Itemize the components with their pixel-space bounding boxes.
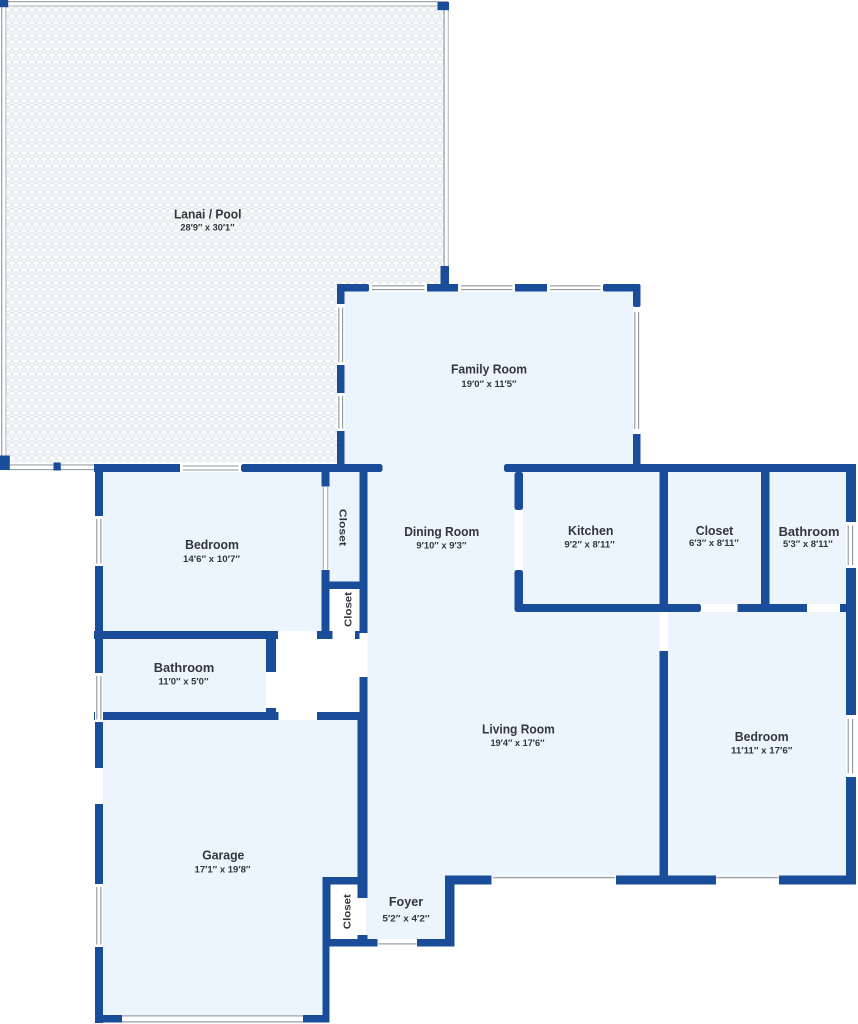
svg-text:17′1″ x 19′8″: 17′1″ x 19′8″ xyxy=(195,865,251,875)
svg-text:Bathroom: Bathroom xyxy=(779,524,840,539)
svg-text:6′3″ x 8′11″: 6′3″ x 8′11″ xyxy=(689,538,739,548)
svg-text:Bedroom: Bedroom xyxy=(735,729,789,744)
svg-text:Closet: Closet xyxy=(343,591,354,627)
svg-text:19′0″ x 11′5″: 19′0″ x 11′5″ xyxy=(461,379,517,389)
svg-text:Bedroom: Bedroom xyxy=(185,537,239,552)
svg-text:Family Room: Family Room xyxy=(451,362,527,377)
svg-text:Kitchen: Kitchen xyxy=(568,523,613,538)
svg-text:9′2″ x 8′11″: 9′2″ x 8′11″ xyxy=(564,540,615,550)
svg-text:Lanai / Pool: Lanai / Pool xyxy=(174,207,242,222)
svg-text:11′11″ x 17′6″: 11′11″ x 17′6″ xyxy=(731,745,793,755)
svg-text:5′2″ x 4′2″: 5′2″ x 4′2″ xyxy=(382,914,430,924)
svg-text:14′6″ x 10′7″: 14′6″ x 10′7″ xyxy=(183,554,241,564)
svg-text:Closet: Closet xyxy=(696,523,734,538)
svg-text:28′9″ x 30′1″: 28′9″ x 30′1″ xyxy=(180,223,235,233)
svg-text:Foyer: Foyer xyxy=(389,894,423,909)
svg-text:9′10″ x 9′3″: 9′10″ x 9′3″ xyxy=(416,540,467,550)
svg-text:5′3″ x 8′11″: 5′3″ x 8′11″ xyxy=(783,539,833,549)
svg-text:Bathroom: Bathroom xyxy=(154,660,215,675)
svg-text:Closet: Closet xyxy=(337,509,348,547)
svg-text:11′0″ x 5′0″: 11′0″ x 5′0″ xyxy=(159,676,210,686)
svg-text:Living Room: Living Room xyxy=(482,721,555,736)
svg-text:Closet: Closet xyxy=(343,894,354,930)
svg-text:Garage: Garage xyxy=(202,847,244,862)
svg-text:Dining Room: Dining Room xyxy=(404,524,479,539)
svg-text:19′4″ x 17′6″: 19′4″ x 17′6″ xyxy=(490,738,545,748)
